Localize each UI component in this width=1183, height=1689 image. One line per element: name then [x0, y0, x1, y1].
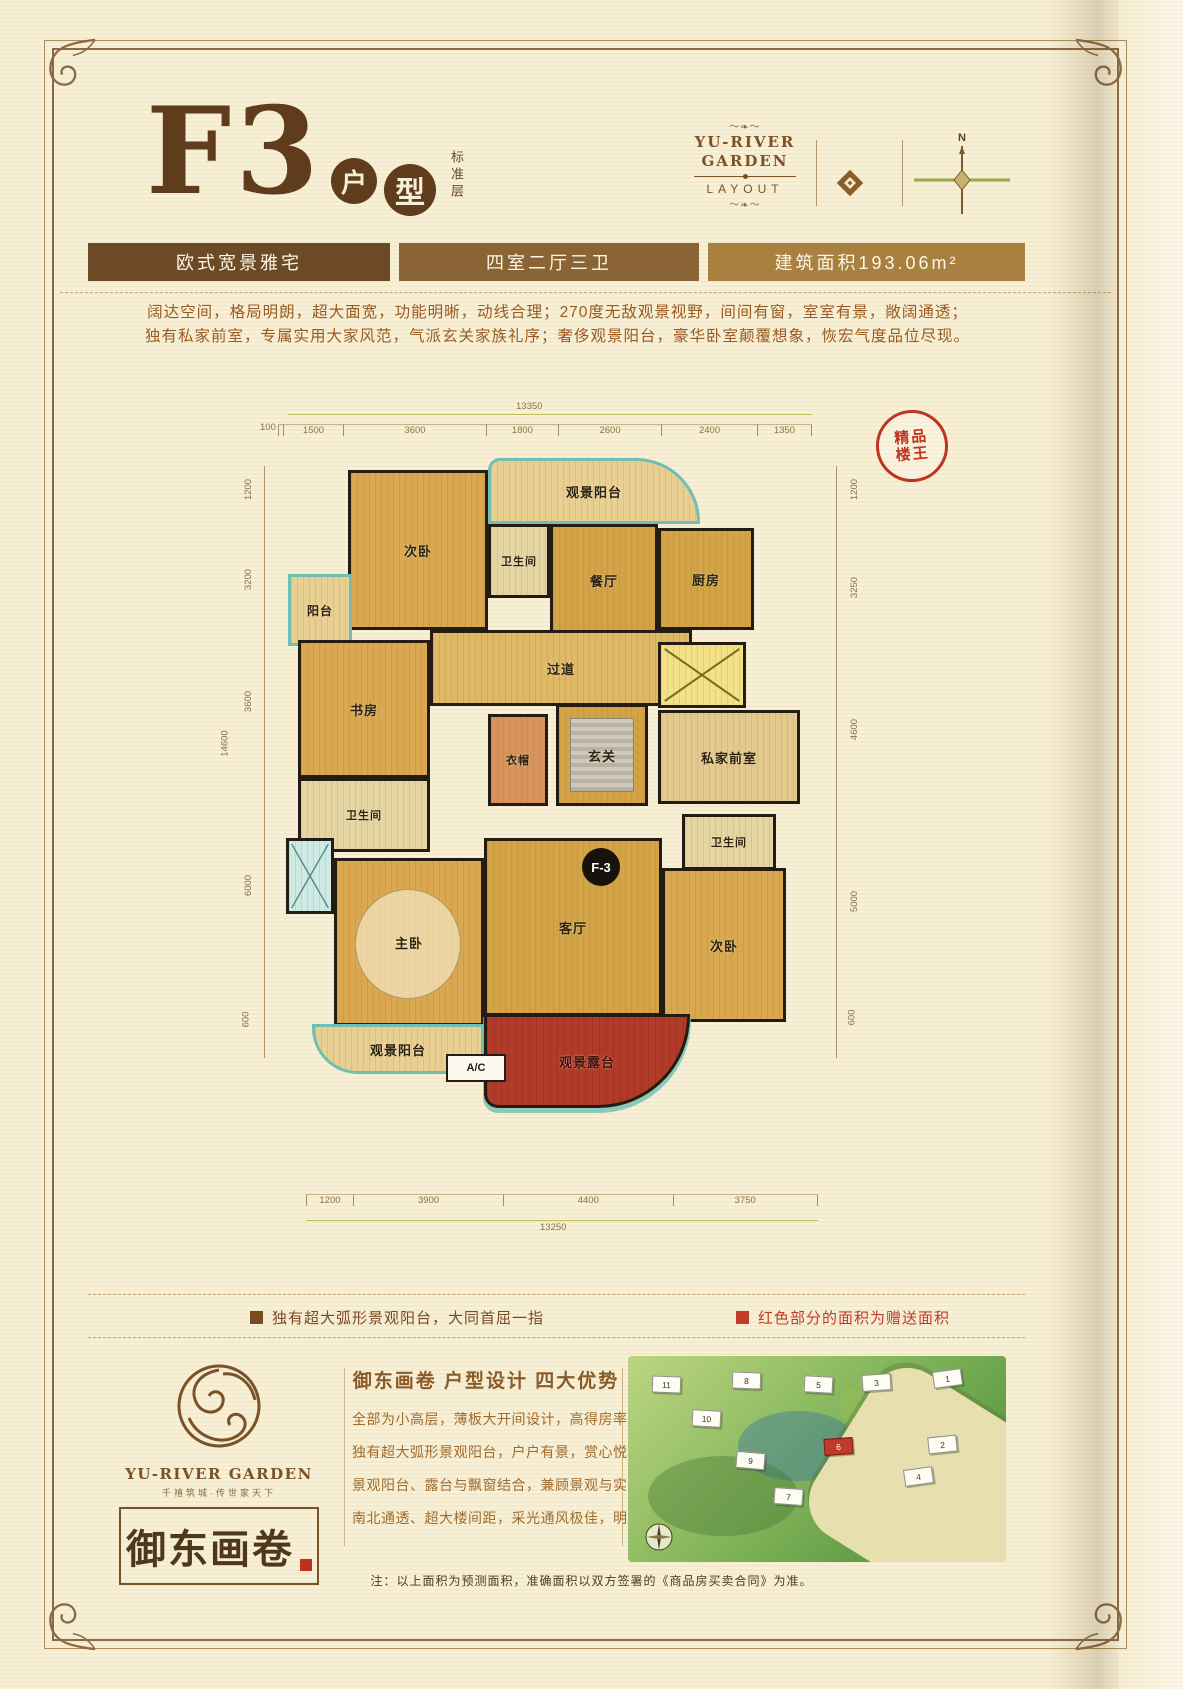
building-marker: 9 — [735, 1451, 765, 1470]
room-label: 过道 — [547, 659, 575, 678]
corner-flourish-icon — [40, 36, 98, 94]
footer-brand-tagline: 千禧筑城·传世家天下 — [100, 1486, 338, 1499]
room-corridor: 过道 — [430, 630, 692, 706]
room-kitchen: 厨房 — [658, 528, 754, 630]
room-foyer: 玄关 — [556, 704, 648, 806]
corner-flourish-icon — [40, 1595, 98, 1653]
brand-name-line2: GARDEN — [686, 152, 804, 171]
legend-text: 红色部分的面积为赠送面积 — [758, 1310, 950, 1327]
footer-divider — [344, 1368, 345, 1546]
description-line-1: 阔达空间，格局明朗，超大面宽，功能明晰，动线合理；270度无敌观景视野，间间有窗… — [90, 301, 1025, 325]
diamond-ornament-icon — [833, 166, 867, 200]
legend-text: 独有超大弧形景观阳台，大同首屈一指 — [272, 1310, 544, 1327]
dim-line — [288, 414, 812, 415]
unit-code-title: F3 — [146, 92, 323, 212]
info-bars: 欧式宽景雅宅 四室二厅三卫 建筑面积193.06m² — [88, 243, 1025, 281]
building-marker: 7 — [773, 1487, 803, 1506]
page-edge — [1129, 0, 1183, 1689]
room-label: 卫生间 — [711, 834, 747, 850]
advantage-line-2: 独有超大弧形景观阳台，户户有景，赏心悦目 — [352, 1436, 620, 1469]
advantage-line-4: 南北通透、超大楼间距，采光通风极佳，明厨明卫 — [352, 1502, 620, 1535]
room-living: 客厅 — [484, 838, 662, 1016]
calligraphy-text: 御东画卷 — [126, 1517, 294, 1575]
dim-right: 1200 — [849, 479, 860, 500]
description-line-2: 独有私家前室，专属实用大家风范，气派玄关家族礼序；奢侈观景阳台，豪华卧室颠覆想象… — [90, 325, 1025, 349]
room-bathroom-right: 卫生间 — [682, 814, 776, 870]
advantages-title: 御东画卷 户型设计 四大优势 — [352, 1366, 620, 1393]
room-label: 次卧 — [710, 936, 738, 955]
room-label: 观景露台 — [559, 1052, 615, 1071]
room-label: 餐厅 — [590, 571, 618, 590]
dim-top-segments: 1500 3600 1800 2600 2400 1350 — [278, 424, 812, 436]
seal-line-2: 楼王 — [895, 445, 930, 465]
building-marker: 10 — [692, 1409, 722, 1427]
dim-right: 3250 — [849, 577, 860, 598]
header-divider — [902, 140, 903, 206]
room-label: 观景阳台 — [566, 482, 622, 501]
brochure-page: F3 户 型 标准层 〜❧〜 YU-RIVER GARDEN LAYOUT 〜❧… — [0, 0, 1183, 1689]
building-marker: 3 — [861, 1373, 891, 1392]
room-label: 玄关 — [588, 746, 616, 765]
room-label: 阳台 — [307, 602, 333, 619]
building-marker-highlight: 6 — [823, 1437, 853, 1456]
dim-left: 3200 — [243, 569, 254, 590]
legend-swatch-red — [736, 1311, 749, 1324]
brand-name-line1: YU-RIVER — [686, 133, 804, 152]
dim-top-total: 13350 — [516, 401, 542, 412]
unit-badge: F-3 — [582, 848, 620, 886]
description-paragraph: 阔达空间，格局明朗，超大面宽，功能明晰，动线合理；270度无敌观景视野，间间有窗… — [90, 301, 1025, 349]
dim-right: 600 — [846, 1010, 857, 1026]
advantage-line-3: 景观阳台、露台与飘窗结合，兼顾景观与实用功能 — [352, 1469, 620, 1502]
bay-window — [286, 838, 334, 914]
room-label: 衣帽 — [506, 752, 530, 768]
advantages-block: 御东画卷 户型设计 四大优势 全部为小高层，薄板大开间设计，高得房率 独有超大弧… — [352, 1366, 620, 1535]
room-bedroom-2: 次卧 — [348, 470, 488, 630]
ac-unit-box: A/C — [446, 1054, 506, 1082]
room-dining: 餐厅 — [550, 524, 658, 636]
dashed-rule — [60, 292, 1111, 293]
logo-flourish-icon — [167, 1356, 271, 1456]
room-label: 私家前室 — [701, 748, 757, 767]
corner-flourish-icon — [1073, 1595, 1131, 1653]
legend: 独有超大弧形景观阳台，大同首屈一指 红色部分的面积为赠送面积 — [88, 1294, 1025, 1338]
corner-flourish-icon — [1073, 36, 1131, 94]
info-bar-area: 建筑面积193.06m² — [708, 243, 1025, 281]
room-label: 卫生间 — [346, 807, 382, 823]
room-bedroom-3: 次卧 — [662, 868, 786, 1022]
room-label: 卫生间 — [501, 553, 537, 569]
dim-bottom-total: 13250 — [540, 1222, 566, 1233]
room-label: 客厅 — [559, 918, 587, 937]
advantage-line-1: 全部为小高层，薄板大开间设计，高得房率 — [352, 1403, 620, 1436]
footer-brand-name: YU-RIVER GARDEN — [100, 1465, 338, 1483]
room-bathroom-top: 卫生间 — [488, 524, 550, 598]
legend-item-gift-area: 红色部分的面积为赠送面积 — [736, 1307, 950, 1328]
dim-bottom-segments: 1200 3900 4400 3750 — [306, 1194, 818, 1206]
building-marker: 1 — [932, 1368, 963, 1389]
unit-type-char-2: 型 — [384, 164, 436, 216]
info-bar-style: 欧式宽景雅宅 — [88, 243, 390, 281]
building-marker: 5 — [804, 1375, 834, 1393]
ornament-icon: 〜❧〜 — [686, 196, 804, 211]
compass-icon: N — [912, 132, 1012, 224]
dim-line — [836, 466, 837, 1058]
footer-note: 注：以上面积为预测面积，准确面积以双方签署的《商品房买卖合同》为准。 — [0, 1572, 1183, 1589]
room-label: 厨房 — [692, 570, 720, 589]
dim-left: 1200 — [243, 479, 254, 500]
ornament-icon: 〜❧〜 — [686, 118, 804, 133]
dim-right: 5000 — [849, 891, 860, 912]
room-balcony-left: 阳台 — [288, 574, 352, 646]
building-marker: 11 — [652, 1375, 682, 1393]
brand-block: 〜❧〜 YU-RIVER GARDEN LAYOUT 〜❧〜 — [686, 118, 804, 211]
room-wardrobe: 衣帽 — [488, 714, 548, 806]
legend-swatch-brown — [250, 1311, 263, 1324]
room-label: 观景阳台 — [370, 1040, 426, 1059]
dim-left-total: 14600 — [220, 730, 231, 756]
compass-north-label: N — [912, 132, 1012, 144]
red-seal-icon — [300, 1559, 312, 1571]
dim-left: 600 — [240, 1012, 251, 1028]
room-view-balcony-top: 观景阳台 — [488, 458, 700, 524]
building-marker: 8 — [732, 1371, 762, 1389]
elevator-shaft — [658, 642, 746, 708]
dim-right: 4600 — [849, 719, 860, 740]
dim-left: 6000 — [243, 875, 254, 896]
floor-plan: 13350 100 1500 3600 1800 2600 2400 1350 … — [230, 402, 875, 1247]
brand-rule — [694, 176, 796, 177]
room-label: 书房 — [350, 700, 378, 719]
room-view-terrace: 观景露台 — [484, 1014, 690, 1108]
info-bar-rooms: 四室二厅三卫 — [399, 243, 699, 281]
legend-item-balcony: 独有超大弧形景观阳台，大同首屈一指 — [250, 1307, 544, 1328]
foyer-rug: 玄关 — [570, 718, 634, 792]
room-master-bedroom: 主卧 — [334, 858, 484, 1026]
dim-line — [306, 1220, 818, 1221]
footer-logo-block: YU-RIVER GARDEN 千禧筑城·传世家天下 御东画卷 — [100, 1356, 338, 1585]
room-label: 次卧 — [404, 541, 432, 560]
site-plan-map: 1 2 3 4 5 6 7 8 9 10 11 — [628, 1356, 1006, 1562]
room-private-front: 私家前室 — [658, 710, 800, 804]
header-divider — [816, 140, 817, 206]
dim-line — [264, 466, 265, 1058]
floor-note: 标准层 — [447, 150, 466, 201]
room-study: 书房 — [298, 640, 430, 778]
site-compass-icon — [644, 1522, 674, 1552]
dim-left: 3600 — [243, 691, 254, 712]
room-label: 主卧 — [395, 933, 423, 952]
building-marker: 2 — [927, 1435, 958, 1455]
unit-type-char-1: 户 — [331, 158, 377, 204]
brand-sub-label: LAYOUT — [686, 182, 804, 196]
dim-top-seg-100: 100 — [260, 422, 276, 433]
